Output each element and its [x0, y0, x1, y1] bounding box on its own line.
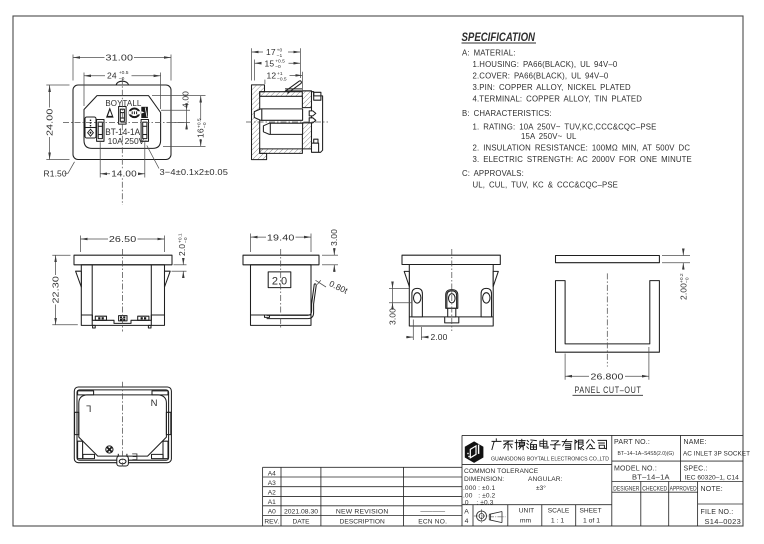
svg-text:+0.5: +0.5 — [275, 59, 285, 65]
svg-text:B: CHARACTERISTICS:: B: CHARACTERISTICS: — [462, 109, 552, 118]
svg-text:3−4±0.1x2±0.05: 3−4±0.1x2±0.05 — [160, 167, 229, 177]
svg-text:A: MATERIAL:: A: MATERIAL: — [462, 49, 516, 58]
svg-text:A: A — [464, 509, 469, 516]
svg-text:14.00: 14.00 — [111, 169, 137, 179]
svg-text:26.800: 26.800 — [591, 372, 624, 382]
svg-text:−0: −0 — [685, 277, 691, 283]
svg-text:GUANGDONG BOYTALL ELECTRONICS: GUANGDONG BOYTALL ELECTRONICS CO.,LTD — [491, 457, 609, 463]
svg-text:+1: +1 — [277, 71, 283, 77]
svg-text:22.30: 22.30 — [51, 276, 61, 304]
svg-text:2.0: 2.0 — [272, 276, 287, 288]
svg-text:2021.08.30: 2021.08.30 — [284, 509, 318, 516]
svg-text:ANGULAR:: ANGULAR: — [528, 476, 563, 483]
svg-text:1. RATING: 10A 250V~ TUV,K: 1. RATING: 10A 250V~ TUV,KC,CCC&CQC–PSE — [473, 122, 657, 131]
svg-text:BT–14–1A–S4S5(2.0)(G): BT–14–1A–S4S5(2.0)(G) — [618, 451, 675, 457]
svg-text:DESIGNER: DESIGNER — [613, 485, 639, 492]
svg-text:2.00: 2.00 — [679, 283, 689, 300]
svg-text:MODEL NO.:: MODEL NO.: — [614, 466, 657, 473]
svg-text:N: N — [151, 398, 158, 409]
svg-text:+0.5: +0.5 — [119, 70, 129, 76]
svg-text:UNIT: UNIT — [519, 508, 534, 515]
svg-text:DESCRIPTION: DESCRIPTION — [340, 518, 385, 525]
svg-text:15: 15 — [265, 58, 275, 68]
svg-text:4: 4 — [465, 518, 469, 525]
svg-text:24.00: 24.00 — [45, 108, 55, 136]
svg-text:NOTE:: NOTE: — [701, 486, 723, 493]
svg-text:.0 : ±0.3: .0 : ±0.3 — [463, 499, 494, 506]
svg-text:UL, CUL, TUV, KC & CCC&CQ: UL, CUL, TUV, KC & CCC&CQC–PSE — [473, 181, 619, 190]
svg-text:24: 24 — [107, 71, 117, 81]
svg-text:S14–0023: S14–0023 — [705, 517, 742, 526]
svg-text:±3°: ±3° — [536, 484, 546, 492]
svg-text:−0: −0 — [202, 122, 208, 128]
svg-text:+0: +0 — [277, 47, 283, 53]
svg-text:2.0: 2.0 — [177, 244, 187, 256]
svg-text:+0.5: +0.5 — [197, 118, 203, 128]
svg-text:ECN NO.: ECN NO. — [418, 518, 447, 525]
svg-text:.000 : ±0.1: .000 : ±0.1 — [463, 485, 495, 492]
svg-text:AC INLET 3P SOCKET: AC INLET 3P SOCKET — [683, 451, 750, 458]
svg-text:17: 17 — [266, 47, 276, 57]
svg-text:31.00: 31.00 — [106, 52, 134, 62]
svg-text:A0: A0 — [268, 509, 276, 516]
svg-text:3. ELECTRIC STRENGTH: AC 2: 3. ELECTRIC STRENGTH: AC 2000V FOR ONE M… — [473, 155, 692, 164]
svg-text:E: E — [132, 450, 138, 461]
svg-text:2.00: 2.00 — [431, 332, 448, 342]
svg-text:NAME:: NAME: — [684, 439, 707, 446]
svg-text:.00 : ±0.2: .00 : ±0.2 — [463, 492, 496, 499]
svg-text:A4: A4 — [268, 470, 276, 477]
svg-text:−1: −1 — [277, 53, 283, 59]
svg-text:4.00: 4.00 — [180, 91, 190, 108]
svg-text:R1.50: R1.50 — [44, 168, 67, 178]
svg-text:NEW REVISION: NEW REVISION — [336, 509, 389, 516]
svg-text:+0.2: +0.2 — [679, 273, 685, 283]
svg-text:1 of 1: 1 of 1 — [583, 518, 600, 525]
svg-text:mm: mm — [520, 518, 532, 525]
svg-text:−0: −0 — [183, 237, 189, 243]
svg-text:1 : 1: 1 : 1 — [551, 518, 564, 525]
svg-text:————: ———— — [420, 508, 446, 515]
svg-text:2.COVER: PA66(BLACK), UL 94: 2.COVER: PA66(BLACK), UL 94V–0 — [473, 71, 609, 80]
svg-text:−0.5: −0.5 — [277, 76, 287, 82]
svg-text:1.HOUSING: PA66(BLACK), UL: 1.HOUSING: PA66(BLACK), UL 94V–0 — [473, 60, 618, 69]
svg-text:REV.: REV. — [264, 518, 279, 525]
svg-text:+0.1: +0.1 — [178, 233, 184, 243]
svg-text:3.PIN: COPPER ALLOY, NICKEL: 3.PIN: COPPER ALLOY, NICKEL PLATED — [473, 83, 631, 92]
svg-text:L: L — [86, 403, 91, 414]
svg-text:−0: −0 — [119, 76, 125, 82]
svg-text:IEC 60320–1, C14: IEC 60320–1, C14 — [685, 475, 740, 482]
svg-text:PANEL CUT–OUT: PANEL CUT–OUT — [575, 385, 642, 395]
svg-text:CHECKED: CHECKED — [642, 485, 668, 492]
svg-text:10A 250V~: 10A 250V~ — [108, 137, 150, 146]
svg-text:3.00: 3.00 — [387, 308, 397, 325]
svg-text:A2: A2 — [268, 490, 276, 497]
svg-text:COMMON TOLERANCE: COMMON TOLERANCE — [464, 468, 539, 475]
svg-text:2. INSULATION RESISTANCE: 1: 2. INSULATION RESISTANCE: 100MΩ MIN, AT … — [473, 144, 691, 153]
svg-text:15A 250V~ UL: 15A 250V~ UL — [521, 132, 577, 141]
svg-text:3.00: 3.00 — [329, 229, 339, 246]
svg-text:16: 16 — [196, 128, 206, 138]
svg-text:SHEET: SHEET — [580, 508, 602, 515]
svg-text:SCALE: SCALE — [548, 508, 570, 515]
svg-text:SPEC.:: SPEC.: — [684, 466, 708, 473]
svg-text:−0: −0 — [275, 64, 281, 70]
svg-text:PART NO.:: PART NO.: — [614, 439, 650, 446]
svg-text:A3: A3 — [268, 480, 276, 487]
svg-text:19.40: 19.40 — [267, 232, 295, 242]
svg-text:SPECIFICATION: SPECIFICATION — [462, 32, 536, 44]
svg-text:4.TERMINAL: COPPER ALLOY, T: 4.TERMINAL: COPPER ALLOY, TIN PLATED — [473, 94, 643, 103]
svg-text:APPROVED: APPROVED — [670, 485, 697, 492]
svg-text:BT–14–1A: BT–14–1A — [632, 473, 670, 482]
svg-text:26.50: 26.50 — [109, 234, 137, 244]
svg-text:A1: A1 — [268, 499, 276, 506]
svg-text:DATE: DATE — [292, 518, 310, 525]
svg-text:12: 12 — [267, 71, 277, 81]
svg-text:C: APPROVALS:: C: APPROVALS: — [462, 169, 524, 178]
svg-text:FILE NO.:: FILE NO.: — [701, 509, 734, 516]
svg-text:DIMENSION:: DIMENSION: — [464, 476, 504, 483]
